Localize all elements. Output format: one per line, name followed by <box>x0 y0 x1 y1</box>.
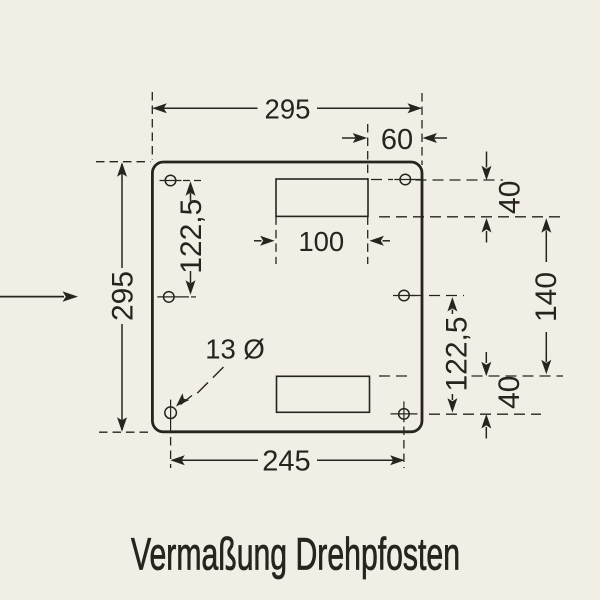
svg-text:Vermaßung Drehpfosten: Vermaßung Drehpfosten <box>131 529 460 580</box>
svg-text:100: 100 <box>298 226 344 257</box>
svg-text:60: 60 <box>381 124 413 156</box>
svg-text:40: 40 <box>493 376 526 409</box>
svg-text:122,5: 122,5 <box>441 316 474 391</box>
svg-text:295: 295 <box>265 94 311 125</box>
svg-text:40: 40 <box>494 181 527 214</box>
svg-text:122,5: 122,5 <box>175 199 208 274</box>
svg-text:13 Ø: 13 Ø <box>205 333 265 364</box>
svg-text:140: 140 <box>530 272 563 322</box>
svg-text:245: 245 <box>262 445 310 477</box>
svg-text:295: 295 <box>107 271 140 321</box>
